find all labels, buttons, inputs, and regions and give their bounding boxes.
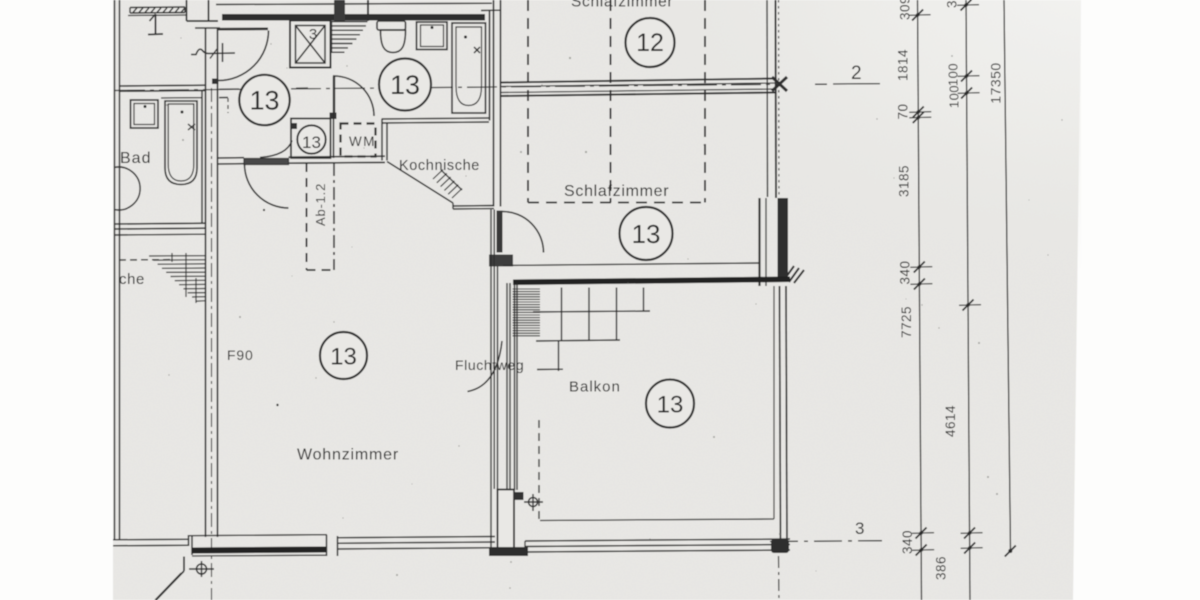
svg-text:70: 70: [896, 103, 911, 119]
svg-text:Kochnische: Kochnische: [399, 158, 480, 174]
svg-text:13: 13: [632, 219, 661, 249]
svg-text:Bad: Bad: [120, 150, 151, 167]
svg-text:1814: 1814: [896, 49, 911, 81]
svg-text:386: 386: [934, 556, 949, 580]
svg-text:12: 12: [636, 29, 664, 57]
svg-text:13: 13: [330, 344, 357, 371]
svg-text:Ab-1.2: Ab-1.2: [313, 183, 328, 226]
svg-text:13: 13: [390, 70, 420, 100]
svg-text:309: 309: [898, 0, 913, 20]
svg-text:17350: 17350: [988, 62, 1004, 103]
svg-text:Schlafzimmer: Schlafzimmer: [571, 0, 673, 11]
svg-text:340: 340: [898, 260, 913, 284]
svg-text:WM: WM: [349, 134, 376, 149]
svg-text:13: 13: [302, 133, 321, 152]
svg-text:3: 3: [945, 0, 960, 8]
svg-text:340: 340: [900, 530, 915, 554]
svg-text:Balkon: Balkon: [569, 379, 621, 396]
svg-text:che: che: [119, 271, 145, 288]
svg-text:Fluchtweg: Fluchtweg: [455, 357, 524, 373]
svg-text:Wohnzimmer: Wohnzimmer: [297, 447, 399, 464]
svg-text:3: 3: [855, 519, 864, 538]
svg-text:Schlafzimmer: Schlafzimmer: [564, 183, 669, 200]
svg-text:3: 3: [309, 26, 318, 43]
svg-text:4614: 4614: [943, 405, 958, 437]
svg-text:F90: F90: [227, 347, 254, 363]
svg-text:7725: 7725: [899, 306, 914, 338]
svg-text:2: 2: [851, 63, 862, 84]
svg-text:13: 13: [249, 86, 279, 116]
svg-text:100: 100: [946, 63, 961, 86]
svg-text:100: 100: [947, 85, 962, 108]
svg-text:13: 13: [657, 392, 684, 419]
svg-text:3185: 3185: [897, 165, 912, 197]
